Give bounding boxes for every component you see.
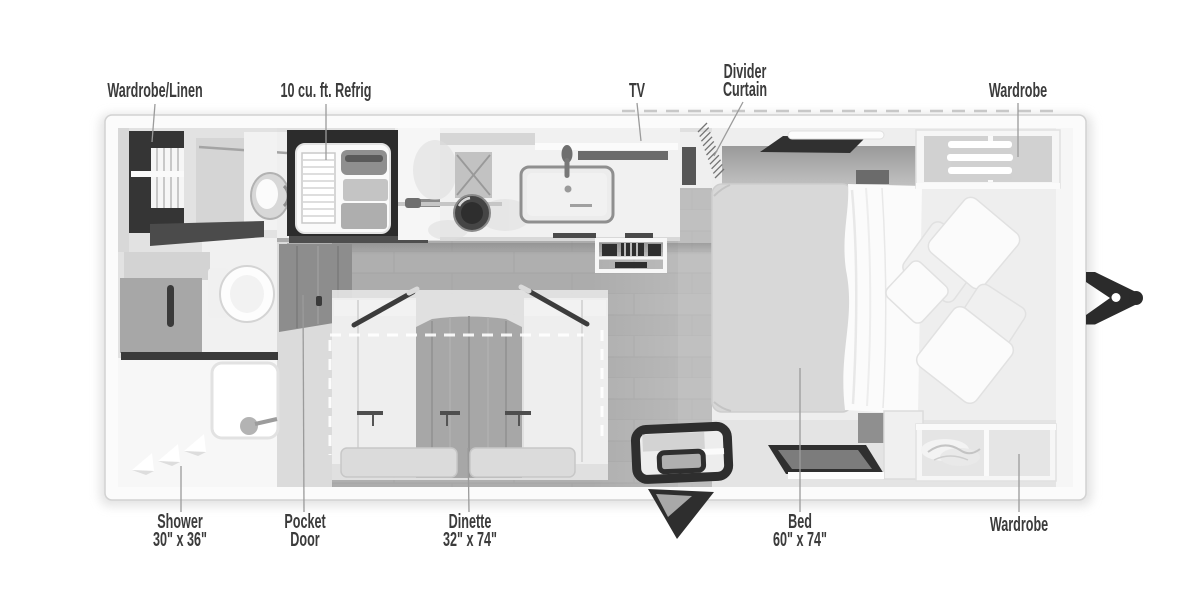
svg-text:60" x 74": 60" x 74" [773, 528, 827, 551]
svg-text:Door: Door [290, 528, 320, 551]
svg-text:Wardrobe: Wardrobe [989, 79, 1047, 102]
svg-text:Wardrobe: Wardrobe [990, 513, 1048, 536]
svg-text:10 cu. ft. Refrig: 10 cu. ft. Refrig [281, 79, 372, 102]
svg-text:32" x 74": 32" x 74" [443, 528, 497, 551]
svg-text:Wardrobe/Linen: Wardrobe/Linen [107, 79, 202, 102]
svg-text:TV: TV [629, 79, 646, 102]
svg-text:Curtain: Curtain [723, 78, 767, 101]
svg-text:30" x 36": 30" x 36" [153, 528, 207, 551]
